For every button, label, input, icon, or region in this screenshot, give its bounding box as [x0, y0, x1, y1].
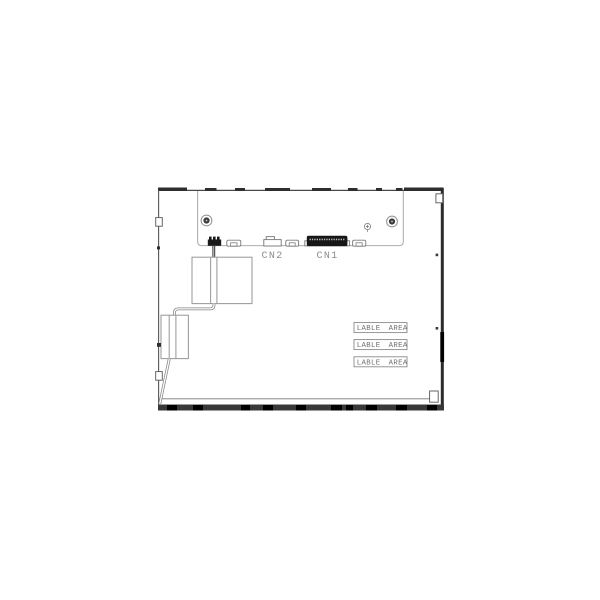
cn1-connector [305, 236, 350, 246]
cn1-label: CN1 [317, 251, 339, 262]
label-area-text-1: LABLE AREA [357, 325, 408, 333]
connector-bracket [264, 237, 281, 246]
label-area-box-3: LABLE AREA [354, 357, 408, 368]
connector-pad-1 [227, 240, 241, 246]
right-edge-tab-bottom [430, 391, 439, 402]
right-edge-tab-top [436, 194, 443, 203]
screw-marker-small [364, 223, 370, 232]
backlight-connector [208, 237, 221, 246]
screw-marker-left [201, 215, 212, 226]
connector-pad-3 [353, 240, 366, 246]
right-edge-dark-segment [440, 332, 444, 362]
label-area-text-3: LABLE AREA [357, 359, 408, 367]
board-block-lower [161, 315, 188, 358]
label-area-box-1: LABLE AREA [354, 323, 408, 334]
cn2-label: CN2 [262, 251, 284, 262]
right-edge-bar [441, 188, 444, 410]
label-area-box-2: LABLE AREA [354, 340, 408, 351]
left-edge-tab-bottom [156, 372, 163, 381]
screw-marker-right [387, 216, 398, 227]
edge-tabs [156, 194, 443, 402]
left-edge-square [157, 343, 161, 347]
diagram-canvas: CN2 CN1 LABLE AREA [0, 0, 600, 600]
left-edge-dot [157, 246, 160, 249]
lcd-rear-view-diagram: CN2 CN1 LABLE AREA [0, 0, 600, 600]
wire-to-corner [160, 359, 170, 404]
left-edge-tab-top [156, 218, 163, 227]
label-area-text-2: LABLE AREA [357, 342, 408, 350]
wire-upper-to-lower [174, 304, 214, 316]
right-edge-dot-lower [436, 327, 439, 330]
connector-pad-2 [286, 240, 299, 246]
right-edge-dot-upper [436, 254, 439, 257]
connector-bay-outline [198, 191, 404, 246]
board-block-upper [192, 257, 252, 303]
backlight-wire-stub [213, 246, 215, 257]
